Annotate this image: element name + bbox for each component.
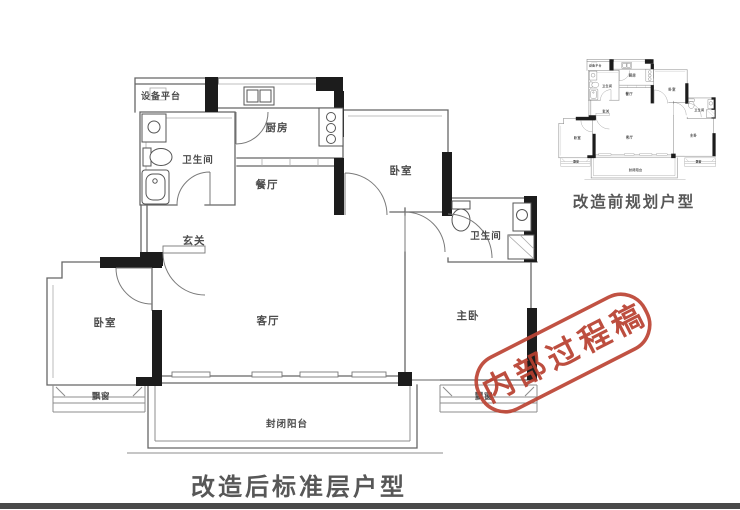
- room-label-equipment-platform: 设备平台: [141, 90, 181, 102]
- room-label-dining: 餐厅: [255, 178, 279, 191]
- toilet-icon: [452, 201, 470, 209]
- room-label-living: 客厅: [256, 314, 280, 327]
- bedroom-left-door: [116, 268, 152, 304]
- room-label-bathroom-1: 卫生间: [182, 154, 214, 166]
- kitchen-door: [236, 112, 268, 144]
- room-label-bay-window-left: 飘窗: [92, 391, 110, 402]
- entry-door-leaf: [163, 246, 205, 253]
- room-label-hall: 玄关: [183, 234, 206, 247]
- window-ticks: [172, 372, 386, 377]
- floorplan-page: 设备平台 卫生间 厨房 餐厅 玄关 卧室 卫生间 主卧 客厅 卧室 飘窗 飘窗 …: [0, 0, 740, 510]
- doors-layer: [116, 112, 492, 304]
- room-label-balcony: 封闭阳台: [266, 418, 308, 430]
- draft-stamp: 内部过程稿: [467, 285, 659, 421]
- bedroom-top-door: [345, 173, 387, 215]
- caption-mini: 改造前规划户型: [573, 192, 696, 211]
- footer-bar: [0, 503, 740, 509]
- room-label-kitchen: 厨房: [266, 121, 289, 134]
- entry-door-arc: [163, 253, 205, 295]
- bathroom2-fixtures: [452, 201, 534, 259]
- kitchen-fixtures: [244, 87, 343, 146]
- bathroom1-fixtures: [142, 114, 172, 204]
- caption-main: 改造后标准层户型: [191, 473, 407, 501]
- room-label-bedroom-top: 卧室: [390, 164, 413, 177]
- room-label-bathroom-2: 卫生间: [470, 230, 502, 242]
- bathroom1-door: [177, 172, 210, 205]
- mini-floorplan: [559, 59, 716, 179]
- room-label-master-bedroom: 主卧: [457, 309, 480, 322]
- floorplan-canvas: 设备平台 卫生间 厨房 餐厅 玄关 卧室 卫生间 主卧 客厅 卧室 飘窗 飘窗 …: [0, 0, 740, 510]
- room-label-bedroom-left: 卧室: [94, 316, 117, 329]
- master-door: [405, 212, 445, 252]
- main-floorplan: 设备平台 卫生间 厨房 餐厅 玄关 卧室 卫生间 主卧 客厅 卧室 飘窗 飘窗 …: [47, 77, 537, 453]
